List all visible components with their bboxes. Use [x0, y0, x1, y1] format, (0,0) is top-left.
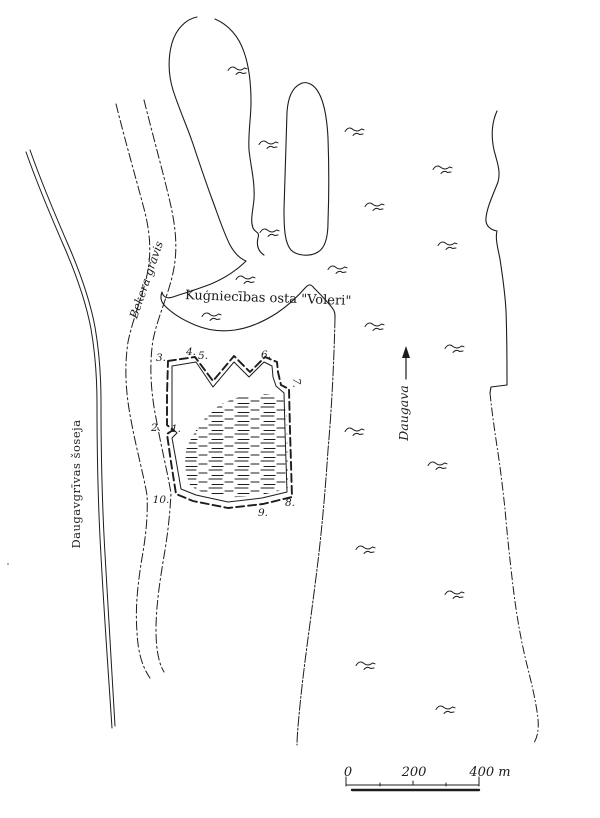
site-marker-10: 10.	[153, 494, 170, 506]
ink-speck	[7, 563, 9, 565]
site-marker-4: 4.	[185, 346, 196, 358]
road-label: Daugavgrīvas šoseja	[69, 419, 83, 548]
site-marker-1: 1.	[171, 423, 181, 435]
site-marker-3: 3.	[156, 352, 166, 364]
site-marker-5: 5.	[198, 350, 208, 362]
scale-label-200: 200	[401, 765, 427, 780]
scanned-map-page: 1. 2. 3. 4. 5. 6. 7. 8. 9. 10.	[0, 0, 600, 818]
paper-background	[0, 0, 600, 818]
site-marker-9: 9.	[258, 507, 268, 519]
map-canvas: 1. 2. 3. 4. 5. 6. 7. 8. 9. 10.	[0, 0, 600, 818]
river-label: Daugava	[396, 385, 411, 442]
site-marker-8: 8.	[285, 497, 295, 509]
scale-label-400: 400 m	[468, 765, 510, 780]
site-marker-7: 7.	[290, 378, 302, 388]
site-marker-6: 6.	[261, 349, 271, 361]
scale-label-0: 0	[344, 765, 352, 780]
site-marker-2: 2.	[150, 422, 161, 434]
